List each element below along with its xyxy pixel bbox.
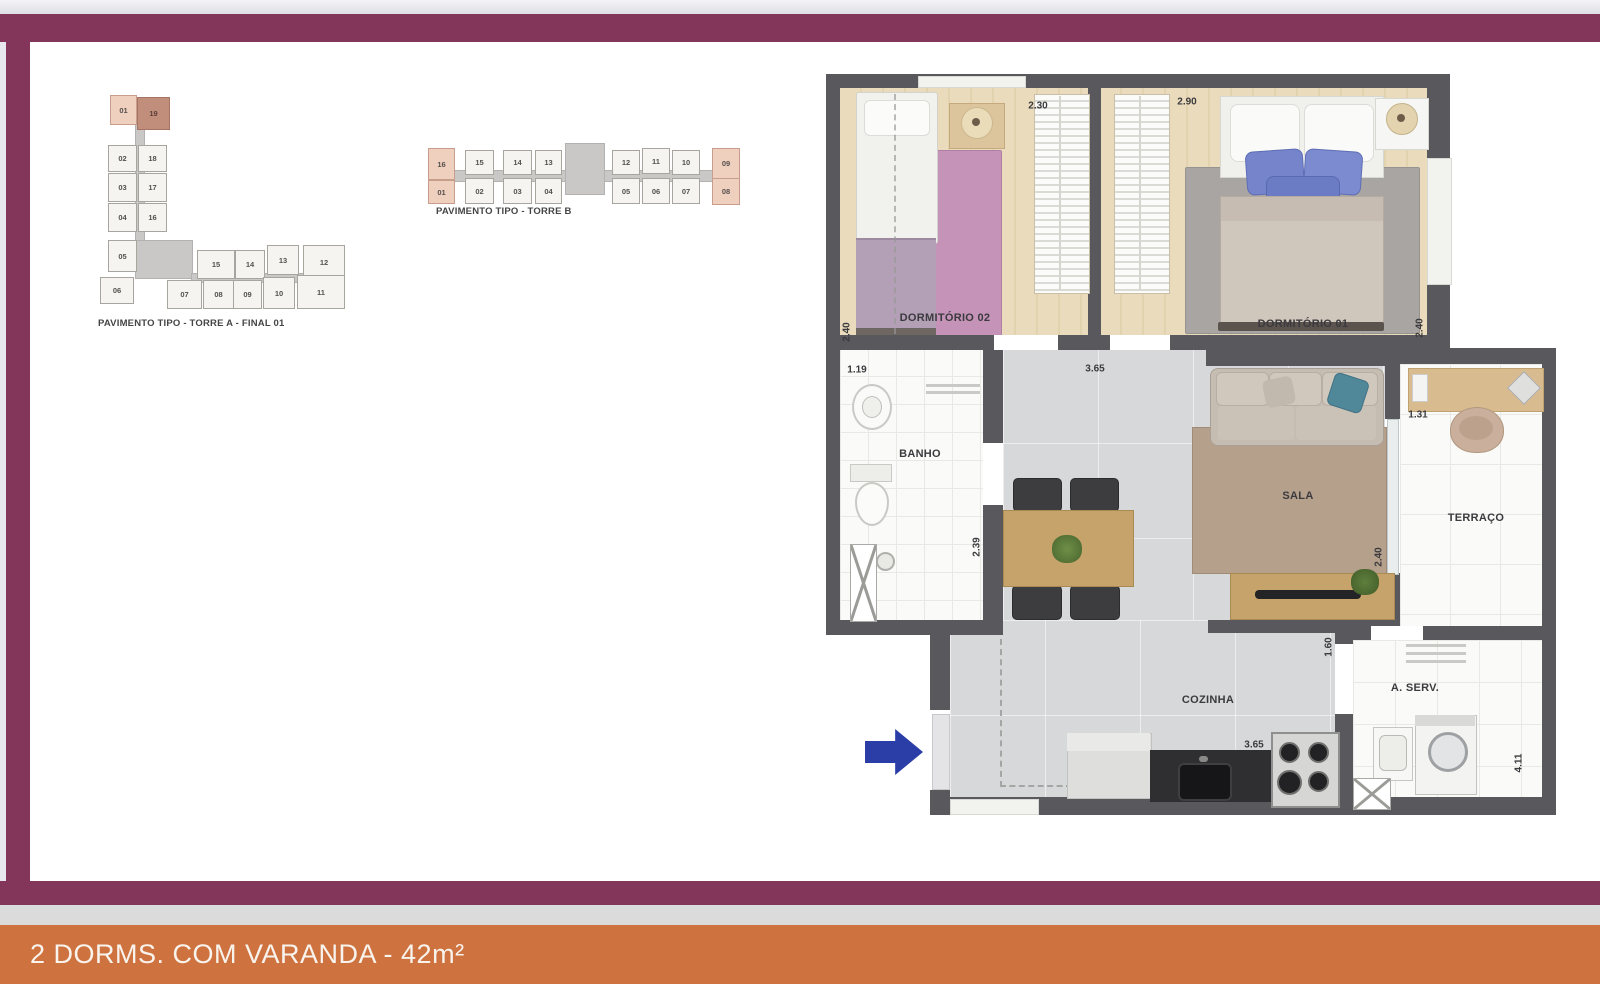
unit-19: 19: [137, 97, 170, 130]
lamp-detail: [1397, 114, 1405, 122]
keyplan-torre-b: 16011502140313041205110610070908 PAVIMEN…: [424, 136, 746, 224]
shelf-line: [1406, 644, 1466, 647]
entrance-arrow-icon: [865, 727, 923, 777]
dining-chair: [1012, 585, 1062, 620]
wall: [826, 620, 1003, 635]
dining-chair: [1070, 585, 1120, 620]
slide-top-maroon-bar: [0, 14, 1600, 42]
unit-18: 18: [138, 145, 167, 172]
double-bed-blanket: [1220, 196, 1384, 326]
dimension-label: 4.11: [1514, 754, 1525, 773]
unit-03: 03: [108, 173, 137, 202]
unit-08: 08: [203, 280, 234, 309]
unit-16: 16: [138, 203, 167, 232]
toilet-tank: [850, 464, 892, 482]
sofa-seat: [1296, 406, 1376, 440]
wall: [1385, 348, 1556, 364]
room-label: TERRAÇO: [1448, 512, 1505, 524]
dimension-label: 3.65: [1244, 740, 1263, 751]
unit-02: 02: [465, 178, 494, 204]
footer-maroon-strip: [0, 881, 1600, 905]
shaft-hatch: [1353, 778, 1391, 810]
door-opening-dorm02: [994, 335, 1058, 350]
towel-bar: [926, 384, 980, 387]
unit-06: 06: [642, 178, 670, 204]
terraco-chair-seat: [1459, 416, 1493, 440]
stove: [1271, 732, 1340, 808]
unit-11: 11: [297, 275, 345, 309]
footer-gray-strip: [0, 905, 1600, 925]
dimension-label: 1.31: [1408, 410, 1427, 421]
door-opening-aserv: [1335, 644, 1353, 714]
stove-burner: [1308, 771, 1329, 792]
door-opening-terraco-aserv: [1371, 626, 1423, 640]
door-opening-dorm01: [1110, 335, 1170, 350]
unit-11: 11: [642, 148, 670, 174]
unit-01: 01: [110, 95, 137, 125]
unit-09: 09: [712, 148, 740, 179]
kitchen-sink: [1178, 763, 1232, 801]
single-bed-footboard: [856, 328, 936, 335]
unit-13: 13: [267, 245, 299, 275]
cabinet-projection-dashed: [1000, 639, 1002, 787]
wardrobe-divider-line: [1139, 96, 1141, 290]
wall: [826, 74, 840, 348]
soundbar: [1255, 590, 1361, 599]
towel-bar: [926, 391, 980, 394]
dimension-label: 1.19: [847, 365, 866, 376]
window-dorm01: [1427, 158, 1452, 285]
room-label: SALA: [1282, 490, 1313, 502]
window-kitchen: [950, 799, 1039, 815]
tower-a-caption: PAVIMENTO TIPO - TORRE A - FINAL 01: [98, 318, 284, 329]
unit-15: 15: [465, 150, 494, 175]
floor-plan: DORMITÓRIO 02DORMITÓRIO 01BANHOSALATERRA…: [826, 66, 1556, 818]
washing-machine-drum: [1428, 732, 1468, 772]
plan-title: 2 DORMS. COM VARANDA - 42m²: [0, 925, 1600, 984]
wardrobe-divider-line: [1059, 96, 1061, 290]
dimension-label: 2.90: [1177, 97, 1196, 108]
corridor: [135, 240, 193, 279]
unit-03: 03: [503, 178, 532, 204]
wardrobe-dorm02: [1034, 94, 1090, 294]
wall: [1206, 350, 1400, 366]
shelf-line: [1406, 660, 1466, 663]
kitchen-faucet: [1199, 756, 1208, 762]
unit-17: 17: [138, 173, 167, 202]
unit-08: 08: [712, 178, 740, 205]
lamp-detail: [972, 118, 980, 126]
dimension-label: 1.60: [1324, 637, 1335, 656]
sofa-seat: [1218, 406, 1294, 440]
unit-05: 05: [108, 240, 137, 272]
section-dashed-line: [894, 94, 896, 334]
shower-head: [876, 552, 895, 571]
room-label: A. SERV.: [1391, 682, 1439, 694]
wall: [1542, 348, 1556, 815]
dimension-label: 2.40: [1415, 318, 1426, 337]
wardrobe-dorm01: [1114, 94, 1170, 294]
washing-machine-panel: [1415, 715, 1475, 726]
room-label: DORMITÓRIO 02: [900, 312, 991, 324]
cabinet-projection-dashed: [1000, 785, 1072, 787]
kitchen-cabinet-top: [1067, 733, 1150, 751]
glass-door-terraco: [1387, 419, 1399, 575]
unit-01: 01: [428, 180, 455, 204]
laundry-tub-basin: [1379, 735, 1407, 771]
slide-left-maroon-border: [6, 42, 30, 881]
dimension-label: 2.39: [972, 537, 983, 556]
desk-book: [1412, 374, 1428, 402]
unit-10: 10: [263, 277, 295, 309]
tower-b-caption: PAVIMENTO TIPO - TORRE B: [436, 206, 572, 217]
elevator-core: [565, 143, 605, 195]
dining-chair: [1070, 478, 1119, 512]
plant-sala: [1351, 569, 1379, 595]
room-label: BANHO: [899, 448, 941, 460]
entrance-door-leaf: [932, 714, 950, 790]
stove-burner: [1308, 742, 1329, 763]
unit-15: 15: [197, 250, 235, 279]
dimension-label: 2.30: [1028, 101, 1047, 112]
plant-centerpiece: [1052, 535, 1082, 563]
wall: [1385, 364, 1400, 419]
room-label: COZINHA: [1182, 694, 1234, 706]
room-label: DORMITÓRIO 01: [1258, 318, 1349, 330]
unit-07: 07: [167, 280, 202, 309]
unit-09: 09: [233, 280, 262, 309]
unit-14: 14: [235, 250, 265, 279]
dimension-label: 2.40: [1374, 547, 1385, 566]
shelf-line: [1406, 652, 1466, 655]
dimension-label: 2.40: [842, 322, 853, 341]
unit-06: 06: [100, 277, 134, 304]
sofa-cushion: [1216, 372, 1269, 406]
unit-12: 12: [612, 150, 640, 175]
unit-02: 02: [108, 145, 137, 172]
unit-12: 12: [303, 245, 345, 279]
door-opening-banho: [983, 443, 1003, 505]
keyplan-torre-a: 01190218031704160506151413120708091011 P…: [96, 90, 356, 336]
unit-13: 13: [535, 150, 562, 175]
unit-07: 07: [672, 178, 700, 204]
sink-basin: [862, 396, 882, 418]
single-bed-pillow: [864, 100, 930, 136]
unit-10: 10: [672, 150, 700, 175]
unit-04: 04: [535, 178, 562, 204]
dining-chair: [1013, 478, 1062, 512]
slide-top-strip: [0, 0, 1600, 14]
stove-burner: [1279, 742, 1300, 763]
unit-14: 14: [503, 150, 532, 175]
footer-title-bar: 2 DORMS. COM VARANDA - 42m²: [0, 925, 1600, 984]
wall: [826, 348, 840, 635]
unit-16: 16: [428, 148, 455, 180]
unit-05: 05: [612, 178, 640, 204]
dimension-label: 3.65: [1085, 364, 1104, 375]
stove-burner: [1277, 770, 1302, 795]
window-dorm02: [918, 76, 1026, 88]
shaft-hatch: [850, 544, 877, 622]
unit-04: 04: [108, 203, 137, 232]
